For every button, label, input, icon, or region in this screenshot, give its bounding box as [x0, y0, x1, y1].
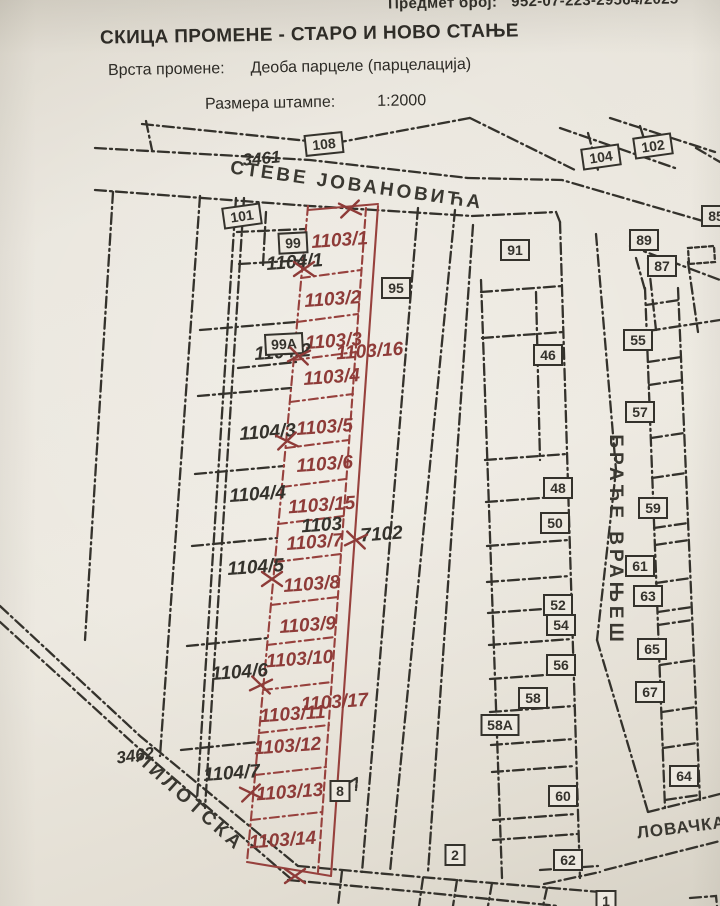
parcel-label-1104-6: 1104/6: [211, 660, 269, 685]
house-number-104: 104: [581, 145, 620, 170]
svg-text:48: 48: [550, 480, 566, 496]
house-number-57: 57: [626, 402, 654, 422]
house-number-64: 64: [670, 766, 698, 786]
svg-text:89: 89: [636, 232, 652, 248]
house-number-95: 95: [382, 278, 410, 298]
parcel-label-1103-13: 1103/13: [255, 780, 324, 806]
house-number-48: 48: [544, 478, 572, 498]
house-number-50: 50: [541, 513, 569, 533]
house-number-102: 102: [633, 134, 672, 159]
svg-text:59: 59: [645, 500, 661, 516]
parcel-label-1103-8: 1103/8: [283, 572, 341, 597]
svg-text:62: 62: [560, 852, 576, 868]
house-number-89: 89: [630, 230, 658, 250]
parcel-label-1103-9: 1103/9: [279, 613, 337, 638]
parcel-label-1103: 1103: [301, 514, 344, 538]
house-number-61: 61: [626, 556, 654, 576]
svg-text:2: 2: [451, 847, 459, 863]
svg-text:56: 56: [553, 657, 569, 673]
svg-text:67: 67: [642, 684, 658, 700]
house-number-58: 58: [519, 688, 547, 708]
house-number-91: 91: [501, 240, 529, 260]
house-number-101: 101: [222, 204, 261, 229]
house-number-99А: 99А: [265, 333, 303, 355]
svg-text:50: 50: [547, 515, 563, 531]
parcel-label-1104-4: 1104/4: [229, 482, 287, 507]
svg-text:58: 58: [525, 690, 541, 706]
svg-text:91: 91: [507, 242, 523, 258]
house-number-55: 55: [624, 330, 652, 350]
house-number-52: 52: [544, 595, 572, 615]
svg-text:57: 57: [632, 404, 648, 420]
svg-text:99: 99: [285, 235, 302, 252]
house-number-62: 62: [554, 850, 582, 870]
house-number-1: 1: [597, 891, 616, 906]
svg-text:55: 55: [630, 332, 646, 348]
svg-text:46: 46: [540, 347, 556, 363]
svg-text:87: 87: [654, 258, 670, 274]
parcel-label-1103-1: 1103/1: [311, 228, 369, 253]
house-number-85: 85: [702, 206, 720, 226]
scanned-cadastral-sheet: Предмет број:952-07-223-29564/2025 СКИЦА…: [0, 0, 720, 906]
parcel-label-1104-7: 1104/7: [203, 761, 262, 786]
svg-text:85: 85: [708, 208, 720, 224]
cadastral-map: 1103/11103/21103/31103/161103/41103/5110…: [0, 0, 720, 906]
svg-text:65: 65: [644, 641, 660, 657]
parcel-label-1103-4: 1103/4: [303, 365, 361, 390]
parcel-label-1103-5: 1103/5: [296, 415, 354, 440]
svg-text:1: 1: [602, 893, 610, 906]
house-number-56: 56: [547, 655, 575, 675]
svg-text:54: 54: [553, 617, 569, 633]
svg-text:95: 95: [388, 280, 404, 296]
parcel-label-1103-11: 1103/11: [259, 702, 326, 728]
house-number-99: 99: [278, 232, 307, 253]
svg-text:108: 108: [312, 135, 337, 153]
house-number-54: 54: [547, 615, 575, 635]
parcel-label-1103-2: 1103/2: [304, 287, 362, 312]
svg-text:8: 8: [336, 783, 344, 799]
house-number-46: 46: [534, 345, 562, 365]
svg-text:52: 52: [550, 597, 566, 613]
house-number-67: 67: [636, 682, 664, 702]
svg-text:63: 63: [640, 588, 656, 604]
svg-text:64: 64: [676, 768, 692, 784]
svg-text:61: 61: [632, 558, 648, 574]
parcel-label-1103-14: 1103/14: [248, 828, 317, 854]
street-label-ЛОВАЧКА: ЛОВАЧКА: [636, 813, 720, 843]
parcel-label-1103-16: 1103/16: [335, 339, 404, 365]
house-number-63: 63: [634, 586, 662, 606]
svg-text:102: 102: [640, 136, 666, 155]
house-number-8: 8: [331, 781, 350, 801]
house-number-58А: 58А: [482, 715, 519, 735]
parcel-label-1103-10: 1103/10: [265, 647, 334, 673]
svg-text:104: 104: [588, 147, 614, 166]
house-number-59: 59: [639, 498, 667, 518]
svg-text:60: 60: [555, 788, 571, 804]
parcel-label-1103-6: 1103/6: [296, 452, 354, 477]
house-number-108: 108: [305, 132, 344, 156]
house-number-65: 65: [638, 639, 666, 659]
svg-text:58А: 58А: [487, 717, 513, 733]
parcel-label-1103-12: 1103/12: [253, 734, 322, 760]
svg-text:101: 101: [229, 206, 255, 225]
house-number-60: 60: [549, 786, 577, 806]
house-number-2: 2: [446, 845, 465, 865]
street-label-БРАЋЕ-ВРАЊЕШ: БРАЋЕ ВРАЊЕШ: [605, 434, 626, 645]
house-number-87: 87: [648, 256, 676, 276]
